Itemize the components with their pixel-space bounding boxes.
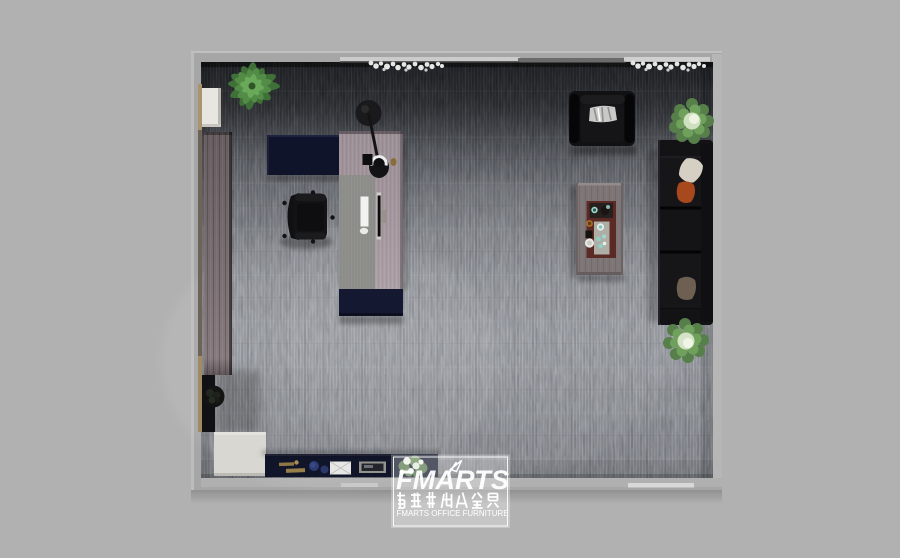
svg-text:FMARTS: FMARTS	[396, 465, 509, 495]
svg-text:FMARTS OFFICE FURNITURE: FMARTS OFFICE FURNITURE	[397, 509, 510, 518]
